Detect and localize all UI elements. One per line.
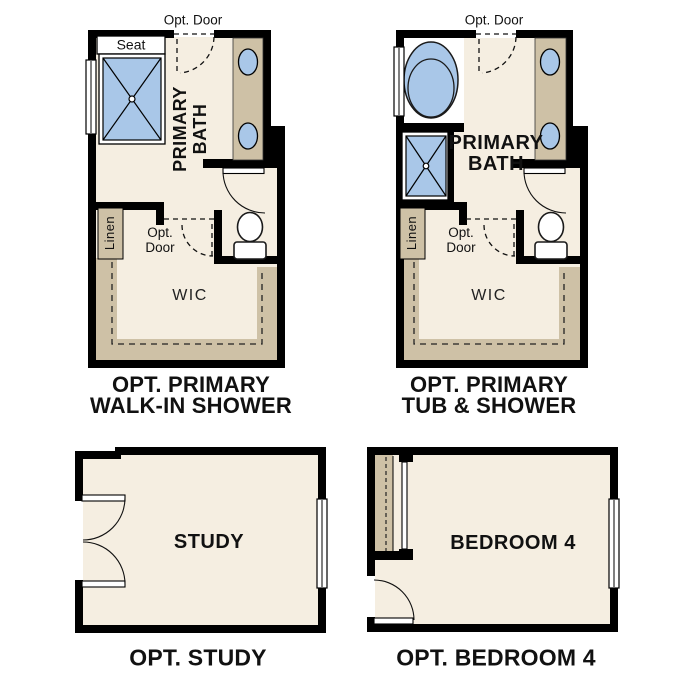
walkin-room-label: PRIMARY BATH [170,86,210,172]
tubshower-opt-mid-line2: Door [446,240,475,255]
tubshower-room-line2: BATH [449,154,544,175]
tubshower-opt-mid-line1: Opt. [446,225,475,240]
tubshower-opt-door-mid-label: Opt. Door [446,225,475,255]
bedroom4-room-label: BEDROOM 4 [450,532,576,554]
tubshower-window [394,47,404,116]
floorplan-canvas: Opt. Door Seat PRIMARY BATH Linen Opt. D… [0,0,687,687]
walkin-caption-line1: OPT. PRIMARY [90,374,292,395]
tubshower-plan [394,30,588,368]
bedroom4-closet [375,455,407,553]
tubshower-caption-line1: OPT. PRIMARY [402,374,577,395]
bedroom4-window [609,499,619,588]
walkin-opt-mid-line1: Opt. [145,225,174,240]
tubshower-opt-door-top-label: Opt. Door [465,14,524,29]
tubshower-room-label: PRIMARY BATH [449,133,544,175]
walkin-window [86,60,96,134]
study-room-label: STUDY [174,531,244,553]
study-window [317,499,327,588]
vanity-double-sink [233,38,263,160]
bedroom4-caption: OPT. BEDROOM 4 [396,645,596,670]
study-caption: OPT. STUDY [129,645,266,670]
shower-seat-label: Seat [117,37,146,52]
floorplan-graphics [0,0,687,687]
walkin-plan [86,30,285,368]
tubshower-caption-line2: TUB & SHOWER [402,395,577,416]
tub-icon [404,42,458,118]
tubshower-caption: OPT. PRIMARY TUB & SHOWER [402,374,577,416]
walkin-wic-label: WIC [172,287,208,305]
tubshower-linen-label: Linen [405,216,419,250]
walkin-caption-line2: WALK-IN SHOWER [90,395,292,416]
walkin-room-line2: BATH [190,86,210,172]
walkin-room-line1: PRIMARY [170,86,190,172]
shower-icon [99,54,165,144]
walkin-linen-label: Linen [103,216,117,250]
tubshower-wic-label: WIC [471,287,507,305]
walkin-opt-door-top-label: Opt. Door [164,14,223,29]
walkin-caption: OPT. PRIMARY WALK-IN SHOWER [90,374,292,416]
shower-icon-2 [402,132,448,200]
walkin-opt-door-mid-label: Opt. Door [145,225,174,255]
walkin-opt-mid-line2: Door [145,240,174,255]
tubshower-room-line1: PRIMARY [449,133,544,154]
